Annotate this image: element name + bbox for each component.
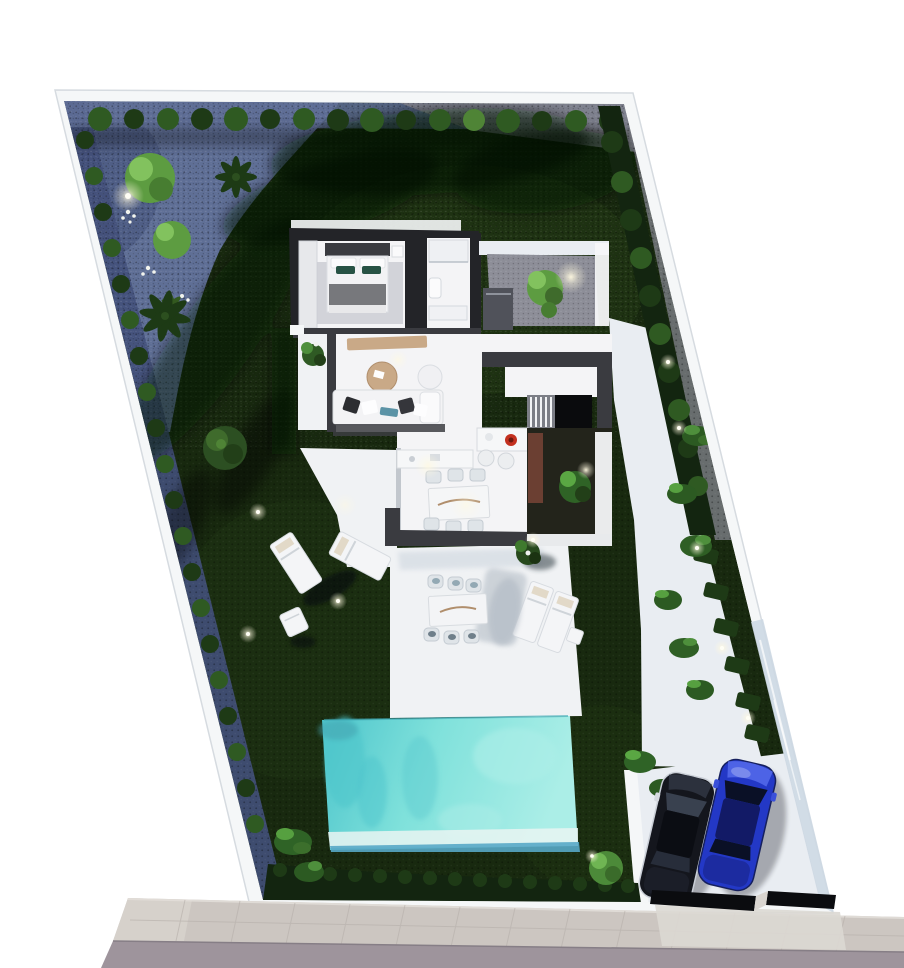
- stair-void: [555, 395, 592, 428]
- tree-highlight: [129, 157, 153, 181]
- courtyard-wall-light: [555, 261, 587, 293]
- driveway-apron: [655, 905, 846, 950]
- ottoman: [418, 365, 442, 389]
- hedge-bump: [273, 863, 287, 877]
- site-plan-render: [0, 0, 904, 968]
- interior-light: [415, 453, 441, 479]
- bush: [219, 707, 237, 725]
- bush: [124, 109, 144, 129]
- bed-cushion-green: [336, 266, 355, 274]
- leafy-plant: [686, 680, 714, 700]
- bush: [121, 311, 139, 329]
- hedge-bump: [498, 874, 512, 888]
- hall-wall: [482, 352, 612, 367]
- bush: [130, 347, 148, 365]
- bathroom-cabinet: [429, 306, 467, 320]
- outdoor-dining-set: [424, 575, 526, 648]
- bush: [147, 419, 165, 437]
- bush: [103, 239, 121, 257]
- counter-sink: [409, 456, 415, 462]
- outdoor-table: [428, 594, 487, 627]
- bush: [112, 275, 130, 293]
- interior-light: [388, 350, 408, 370]
- bush: [601, 131, 623, 153]
- dining-chair: [470, 469, 485, 481]
- bush: [237, 779, 255, 797]
- bush: [649, 323, 671, 345]
- spot-light-core: [125, 193, 131, 199]
- hedge-bump: [323, 867, 337, 881]
- bush: [192, 599, 210, 617]
- bedroom-bath-wall: [405, 235, 427, 330]
- bush: [210, 671, 228, 689]
- bush: [532, 111, 552, 131]
- patio-courtyard: [479, 241, 609, 330]
- interior-light: [450, 489, 482, 521]
- bush: [94, 203, 112, 221]
- bush: [396, 110, 416, 130]
- bush: [157, 108, 179, 130]
- bush: [668, 399, 690, 421]
- kitchen-island: [477, 428, 528, 451]
- bush: [165, 491, 183, 509]
- bush: [228, 743, 246, 761]
- bush: [201, 635, 219, 653]
- bush: [496, 109, 520, 133]
- bar-stool: [478, 450, 494, 466]
- courtyard-east-wall: [595, 243, 609, 326]
- render-canvas: [0, 0, 904, 968]
- hedge-bump: [373, 869, 387, 883]
- nightstand: [392, 246, 403, 257]
- brick-wall: [528, 433, 543, 503]
- wardrobe: [299, 241, 317, 328]
- bed-blanket: [329, 284, 386, 308]
- stair-landing: [505, 367, 597, 397]
- hedge-bump: [473, 873, 487, 887]
- swimming-pool: [318, 716, 580, 852]
- hall-corridor: [482, 334, 612, 352]
- hedge-bump: [523, 875, 537, 889]
- bush: [463, 109, 485, 131]
- bush: [138, 383, 156, 401]
- stool-shadow: [290, 636, 316, 648]
- courtyard2-east-wall: [595, 432, 612, 538]
- bush: [630, 247, 652, 269]
- stair-east-wall: [597, 352, 612, 432]
- bush: [156, 455, 174, 473]
- kitchen-dining: [385, 428, 533, 546]
- sink: [429, 278, 441, 298]
- hedge-bump: [423, 871, 437, 885]
- bed-cushion-green: [362, 266, 381, 274]
- bush: [260, 109, 280, 129]
- leafy-plant: [654, 590, 682, 610]
- bush: [246, 815, 264, 833]
- garden-tree: [203, 426, 247, 470]
- bush: [88, 107, 112, 131]
- bush: [360, 108, 384, 132]
- bush: [293, 108, 315, 130]
- courtyard-north-walk: [479, 241, 609, 255]
- leafy-plant: [669, 638, 699, 658]
- hedge-bump: [621, 879, 635, 893]
- island-sink: [485, 433, 493, 441]
- hedge-bump: [573, 877, 587, 891]
- tree-highlight: [156, 223, 174, 241]
- bed-headboard: [325, 243, 390, 256]
- bush: [183, 563, 201, 581]
- courtyard2-light: [577, 461, 595, 479]
- bush: [327, 109, 349, 131]
- bush: [611, 171, 633, 193]
- bush: [565, 110, 587, 132]
- bush: [76, 131, 94, 149]
- bush: [174, 527, 192, 545]
- bar-stool: [498, 453, 514, 469]
- tree-shade: [149, 177, 173, 201]
- bed-footthrow: [329, 305, 386, 313]
- dining-chair: [424, 518, 439, 530]
- red-cook-pot-center: [509, 438, 514, 443]
- bush: [620, 209, 642, 231]
- nw-wall-cap: [290, 325, 304, 335]
- hedge-bump: [348, 868, 362, 882]
- dining-chair: [468, 520, 483, 532]
- bedroom: [299, 241, 405, 328]
- hedge-bump: [548, 876, 562, 890]
- bathroom: [427, 238, 470, 328]
- hedge-bump: [398, 870, 412, 884]
- dining-chair: [448, 469, 463, 481]
- palm-tree: [215, 156, 257, 198]
- bush: [191, 108, 213, 130]
- bush: [429, 109, 451, 131]
- hedge-bump: [448, 872, 462, 886]
- bush: [639, 285, 661, 307]
- shower: [429, 240, 468, 262]
- interior-courtyard: [527, 428, 612, 546]
- terrace-light: [333, 493, 357, 517]
- bush: [224, 107, 248, 131]
- bush: [85, 167, 103, 185]
- living-room: [333, 334, 482, 436]
